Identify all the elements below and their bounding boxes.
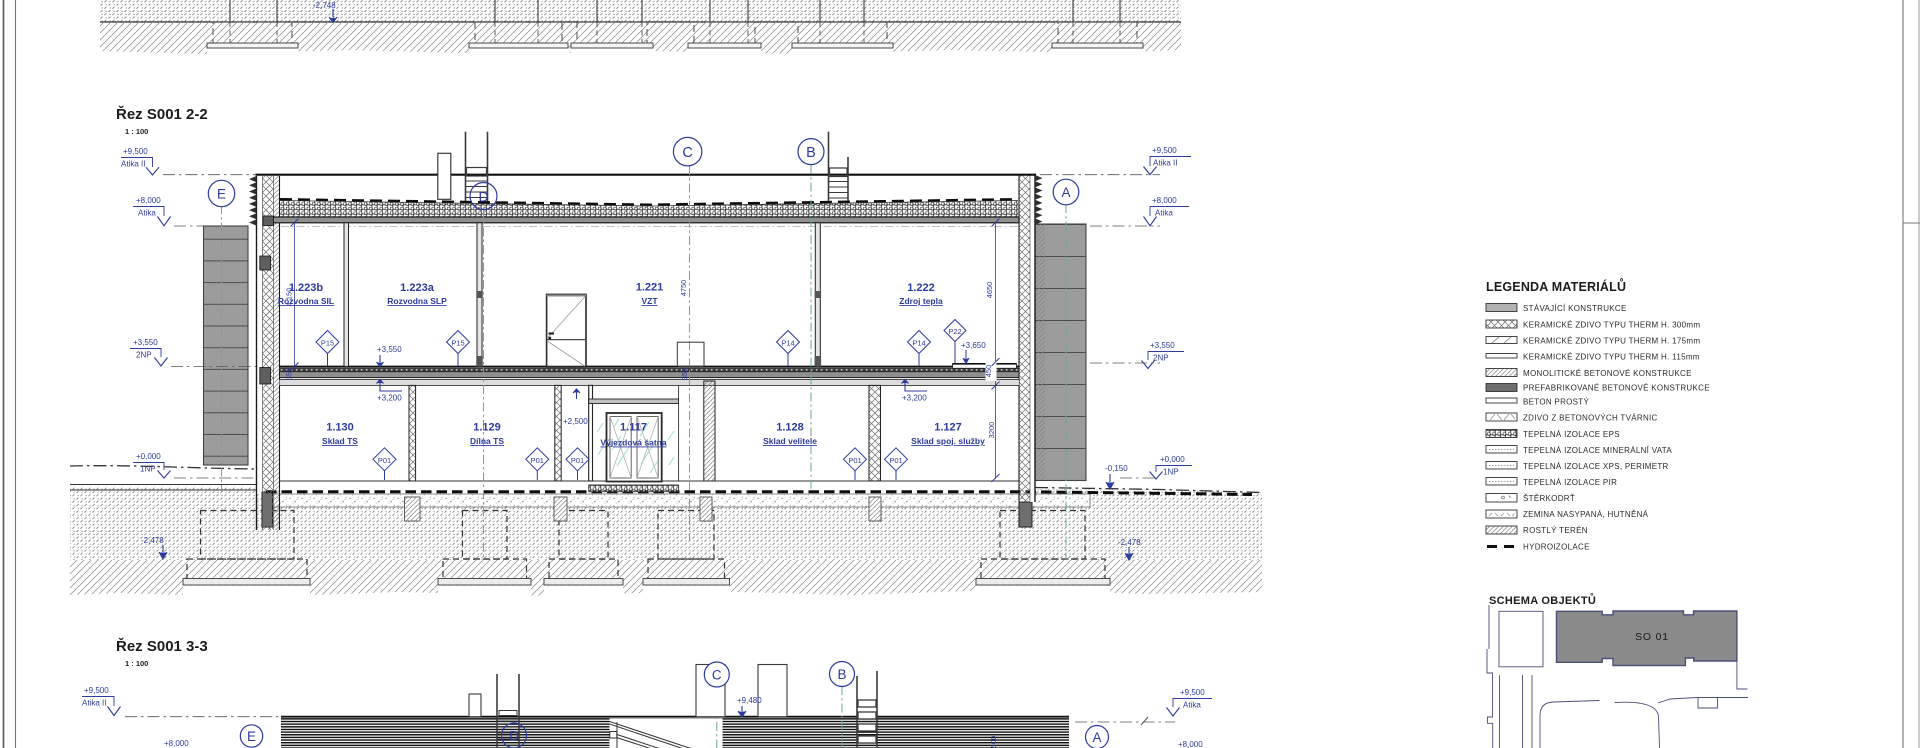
svg-text:350: 350 bbox=[680, 368, 689, 381]
svg-text:C: C bbox=[682, 145, 692, 161]
svg-text:+9,500: +9,500 bbox=[84, 686, 109, 695]
svg-text:-0,150: -0,150 bbox=[1105, 464, 1128, 473]
svg-text:P14: P14 bbox=[781, 339, 794, 348]
svg-text:2NP: 2NP bbox=[136, 351, 152, 360]
svg-text:+8,000: +8,000 bbox=[136, 196, 161, 205]
svg-text:1NP: 1NP bbox=[1163, 468, 1179, 477]
svg-text:ŠTĚRKODRŤ: ŠTĚRKODRŤ bbox=[1523, 494, 1575, 503]
svg-text:KERAMICKÉ ZDIVO TYPU THERM H.: KERAMICKÉ ZDIVO TYPU THERM H. 300mm bbox=[1523, 321, 1700, 330]
svg-text:MONOLITICKÉ BETONOVÉ KONSTRUKC: MONOLITICKÉ BETONOVÉ KONSTRUKCE bbox=[1523, 369, 1692, 378]
svg-text:1.222: 1.222 bbox=[907, 282, 935, 294]
svg-text:1 : 100: 1 : 100 bbox=[125, 659, 148, 668]
svg-text:LEGENDA MATERIÁLŮ: LEGENDA MATERIÁLŮ bbox=[1486, 278, 1626, 294]
svg-text:PREFABRIKOVANÉ BETONOVÉ KONSTR: PREFABRIKOVANÉ BETONOVÉ KONSTRUKCE bbox=[1523, 384, 1710, 393]
svg-text:TEPELNÁ IZOLACE MINERÁLNÍ VATA: TEPELNÁ IZOLACE MINERÁLNÍ VATA bbox=[1523, 446, 1672, 455]
svg-text:STÁVAJÍCÍ KONSTRUKCE: STÁVAJÍCÍ KONSTRUKCE bbox=[1523, 304, 1627, 313]
svg-text:Sklad TS: Sklad TS bbox=[322, 436, 358, 446]
svg-text:HYDROIZOLACE: HYDROIZOLACE bbox=[1523, 543, 1590, 552]
svg-text:ROSTLÝ TERÉN: ROSTLÝ TERÉN bbox=[1523, 526, 1588, 535]
svg-text:ZEMINA NASYPANÁ, HUTNĚNÁ: ZEMINA NASYPANÁ, HUTNĚNÁ bbox=[1523, 510, 1649, 519]
svg-text:1 : 100: 1 : 100 bbox=[125, 127, 148, 136]
svg-text:4,150: 4,150 bbox=[285, 288, 294, 307]
svg-text:1.223a: 1.223a bbox=[400, 282, 435, 294]
svg-text:Rozvodna SLP: Rozvodna SLP bbox=[387, 296, 447, 306]
svg-text:P01: P01 bbox=[571, 456, 584, 465]
svg-text:Atika: Atika bbox=[1155, 209, 1173, 218]
svg-text:KERAMICKÉ ZDIVO TYPU THERM H.: KERAMICKÉ ZDIVO TYPU THERM H. 175mm bbox=[1523, 337, 1700, 346]
svg-text:Sklad velitele: Sklad velitele bbox=[763, 436, 817, 446]
svg-text:+3,650: +3,650 bbox=[961, 341, 986, 350]
svg-text:Atika: Atika bbox=[1183, 701, 1201, 710]
svg-text:Výjezdová šatna: Výjezdová šatna bbox=[600, 438, 666, 448]
svg-text:D: D bbox=[509, 729, 519, 744]
svg-text:Zdroj tepla: Zdroj tepla bbox=[899, 296, 943, 306]
svg-text:350: 350 bbox=[285, 368, 294, 381]
svg-text:+3,200: +3,200 bbox=[377, 394, 402, 403]
svg-text:P01: P01 bbox=[378, 456, 391, 465]
svg-text:A: A bbox=[1092, 730, 1101, 745]
svg-text:P14: P14 bbox=[912, 339, 925, 348]
svg-text:+9,500: +9,500 bbox=[1152, 146, 1177, 155]
svg-text:SCHEMA OBJEKTŮ: SCHEMA OBJEKTŮ bbox=[1489, 593, 1596, 607]
svg-text:ZDIVO Z BETONOVÝCH TVÁRNIC: ZDIVO Z BETONOVÝCH TVÁRNIC bbox=[1523, 414, 1658, 423]
svg-text:4750: 4750 bbox=[679, 280, 688, 297]
svg-text:VZT: VZT bbox=[641, 296, 658, 306]
svg-text:Atika II: Atika II bbox=[121, 160, 145, 169]
svg-text:TEPELNÁ IZOLACE PIR: TEPELNÁ IZOLACE PIR bbox=[1523, 478, 1617, 487]
svg-text:P01: P01 bbox=[889, 456, 902, 465]
svg-text:1.117: 1.117 bbox=[620, 422, 647, 434]
svg-text:Atika: Atika bbox=[138, 209, 156, 218]
svg-text:+8,000: +8,000 bbox=[164, 739, 189, 748]
svg-text:Atika II: Atika II bbox=[1153, 159, 1177, 168]
svg-text:Atika II: Atika II bbox=[82, 699, 106, 708]
svg-text:1.128: 1.128 bbox=[776, 422, 804, 434]
svg-text:+8,000: +8,000 bbox=[1152, 196, 1177, 205]
svg-text:Řez S001 3-3: Řez S001 3-3 bbox=[116, 637, 208, 655]
svg-text:3200: 3200 bbox=[987, 422, 996, 439]
svg-text:P22: P22 bbox=[948, 327, 961, 336]
svg-text:+9,500: +9,500 bbox=[123, 147, 148, 156]
svg-text:2NP: 2NP bbox=[1153, 354, 1169, 363]
svg-text:P15: P15 bbox=[321, 339, 334, 348]
svg-text:1.223b: 1.223b bbox=[289, 282, 324, 294]
svg-text:+0,000: +0,000 bbox=[1160, 455, 1185, 464]
svg-text:E: E bbox=[217, 187, 226, 202]
svg-text:450: 450 bbox=[984, 365, 993, 378]
svg-text:B: B bbox=[837, 667, 846, 682]
svg-text:+8,000: +8,000 bbox=[1178, 740, 1203, 748]
svg-text:P01: P01 bbox=[531, 456, 544, 465]
svg-text:+2,500: +2,500 bbox=[563, 417, 588, 426]
svg-text:+0,000: +0,000 bbox=[136, 452, 161, 461]
svg-text:500: 500 bbox=[989, 736, 998, 748]
svg-text:-2,478: -2,478 bbox=[1118, 538, 1141, 547]
svg-text:B: B bbox=[806, 145, 816, 161]
svg-text:KERAMICKÉ ZDIVO TYPU THERM H.: KERAMICKÉ ZDIVO TYPU THERM H. 115mm bbox=[1523, 353, 1700, 362]
svg-text:Sklad spoj. služby: Sklad spoj. služby bbox=[911, 436, 985, 446]
svg-text:-2,478: -2,478 bbox=[141, 536, 164, 545]
svg-text:P15: P15 bbox=[451, 339, 464, 348]
svg-text:+9,500: +9,500 bbox=[1180, 688, 1205, 697]
svg-text:BETON PROSTÝ: BETON PROSTÝ bbox=[1523, 398, 1589, 407]
svg-text:A: A bbox=[1061, 185, 1070, 200]
svg-text:C: C bbox=[712, 668, 722, 683]
svg-text:+9,480: +9,480 bbox=[737, 696, 762, 705]
svg-text:1NP: 1NP bbox=[140, 465, 156, 474]
svg-text:Řez S001 2-2: Řez S001 2-2 bbox=[116, 105, 208, 123]
svg-text:+3,200: +3,200 bbox=[902, 394, 927, 403]
svg-text:1.221: 1.221 bbox=[636, 282, 664, 294]
svg-text:Dílna TS: Dílna TS bbox=[470, 436, 504, 446]
svg-text:1.129: 1.129 bbox=[473, 422, 501, 434]
svg-text:1.130: 1.130 bbox=[326, 422, 354, 434]
svg-text:+3,550: +3,550 bbox=[1150, 341, 1175, 350]
svg-text:4650: 4650 bbox=[985, 282, 994, 299]
svg-text:+3,550: +3,550 bbox=[133, 338, 158, 347]
svg-text:TEPELNÁ IZOLACE XPS, PERIMETR: TEPELNÁ IZOLACE XPS, PERIMETR bbox=[1523, 462, 1669, 471]
svg-text:D: D bbox=[478, 189, 488, 205]
svg-text:TEPELNÁ IZOLACE EPS: TEPELNÁ IZOLACE EPS bbox=[1523, 430, 1620, 439]
svg-text:-2,748: -2,748 bbox=[313, 1, 336, 10]
svg-text:SO 01: SO 01 bbox=[1635, 631, 1669, 643]
svg-text:E: E bbox=[247, 729, 256, 744]
svg-text:P01: P01 bbox=[848, 456, 861, 465]
svg-text:+3,550: +3,550 bbox=[377, 345, 402, 354]
svg-text:1.127: 1.127 bbox=[934, 422, 962, 434]
